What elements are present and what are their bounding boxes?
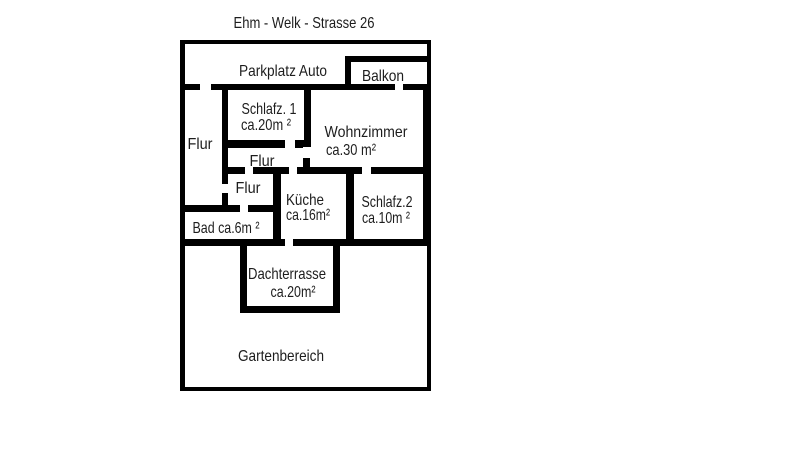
svg-text:Schlafz. 1: Schlafz. 1 [242,101,297,118]
svg-text:Flur: Flur [188,136,214,153]
svg-text:ca.20m ²: ca.20m ² [241,117,292,134]
svg-text:ca.20m²: ca.20m² [271,284,317,301]
svg-text:ca.16m²: ca.16m² [286,207,331,224]
svg-text:Parkplatz Auto: Parkplatz Auto [239,63,327,80]
svg-text:Wohnzimmer: Wohnzimmer [325,124,409,141]
svg-text:ca.10m ²: ca.10m ² [362,210,411,227]
svg-text:Bad ca.6m ²: Bad ca.6m ² [193,220,261,237]
svg-text:Gartenbereich: Gartenbereich [238,348,324,365]
svg-text:Flur: Flur [236,180,262,197]
svg-text:Ehm - Welk - Strasse 26: Ehm - Welk - Strasse 26 [234,15,375,32]
svg-text:Dachterrasse: Dachterrasse [248,266,326,283]
svg-text:Flur: Flur [250,153,276,170]
svg-text:Schlafz.2: Schlafz.2 [362,194,413,211]
svg-text:Balkon: Balkon [362,68,404,85]
svg-text:ca.30 m²: ca.30 m² [326,142,377,159]
